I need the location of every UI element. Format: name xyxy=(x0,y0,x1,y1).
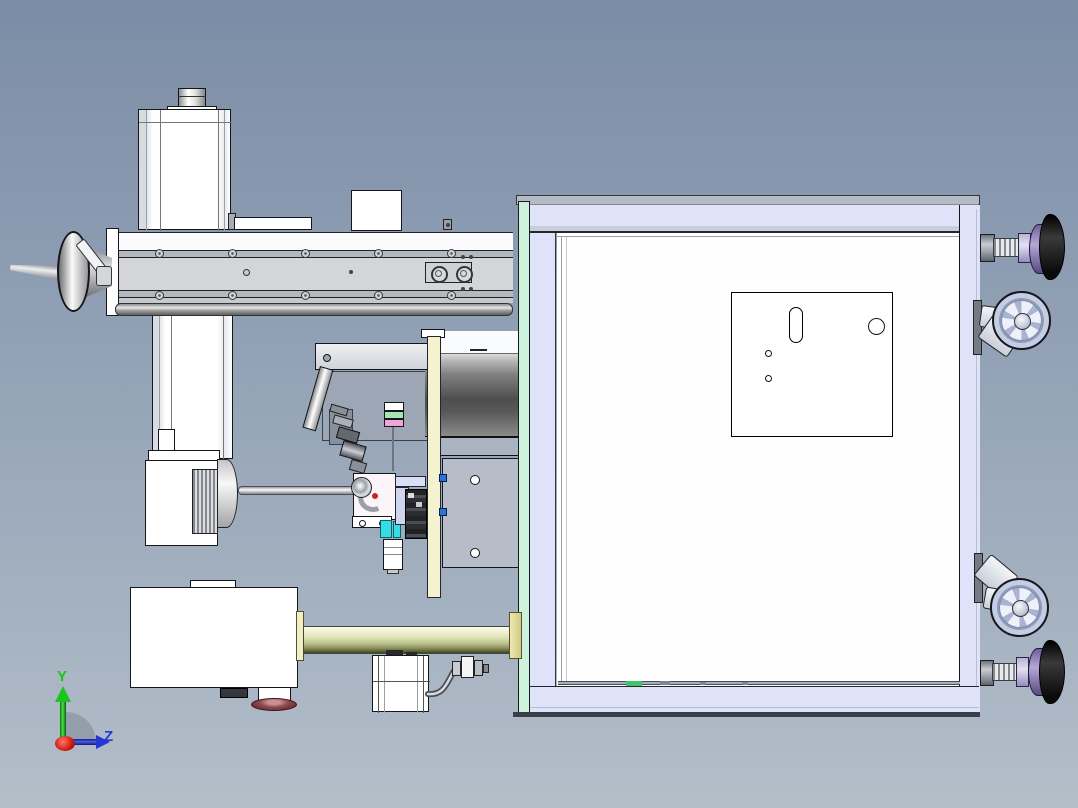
box-foot-red-pad xyxy=(251,698,297,711)
panel-pin-hole xyxy=(765,350,772,357)
tower-line xyxy=(218,110,219,231)
lower-white-cylinder[interactable] xyxy=(383,539,403,570)
small-screw-block xyxy=(443,219,452,230)
x-axis-origin-blob[interactable] xyxy=(55,736,75,751)
valve-chip xyxy=(416,502,422,507)
blue-clip xyxy=(439,474,447,482)
cad-viewport[interactable]: Y Z xyxy=(0,0,1078,808)
tube-end-plate xyxy=(509,612,522,659)
shelf-bracket[interactable] xyxy=(315,343,429,370)
motor-flange xyxy=(217,459,238,528)
stack-white xyxy=(384,402,404,411)
carriage-ring-screw xyxy=(431,266,448,283)
rail-top-band xyxy=(119,232,513,250)
door-line xyxy=(566,236,567,683)
column-line xyxy=(976,209,977,709)
cylinder-cap xyxy=(387,569,399,574)
column-line xyxy=(223,313,224,460)
valve-chip xyxy=(408,493,414,498)
motor-top-piece xyxy=(158,429,175,452)
door-line xyxy=(561,236,562,683)
tower-line xyxy=(224,110,225,231)
cyl-tip xyxy=(349,459,367,474)
box-foot-dark xyxy=(220,688,248,698)
box-body xyxy=(130,587,298,688)
wheel-hub xyxy=(1014,313,1031,330)
cabinet-bottom-detail xyxy=(558,681,960,685)
cap-cylinder xyxy=(178,88,206,108)
inner-access-panel[interactable] xyxy=(731,292,893,437)
tower-line xyxy=(146,110,147,231)
cabinet-right-column xyxy=(959,205,980,714)
adjuster-knob xyxy=(351,477,372,498)
band-tick xyxy=(470,349,487,351)
actuator-tower-body[interactable] xyxy=(138,109,231,230)
support-block[interactable] xyxy=(351,190,402,231)
gray-chip xyxy=(660,681,670,685)
caster-wheel xyxy=(992,291,1051,350)
y-axis-shaft[interactable] xyxy=(60,700,66,740)
stepper-line xyxy=(384,656,385,713)
bar-line xyxy=(530,707,979,708)
l-bracket-top xyxy=(395,476,426,487)
foot-threaded-rod xyxy=(992,663,1018,681)
cable-connector-c xyxy=(474,660,483,676)
foot-threaded-rod xyxy=(993,238,1020,257)
cabinet-top-subband xyxy=(530,226,979,233)
cyl-line xyxy=(384,547,402,548)
panel-round-hole xyxy=(868,318,885,335)
motor-shaft[interactable] xyxy=(238,486,360,495)
stack-green xyxy=(384,411,404,419)
carriage-ring-screw xyxy=(456,266,473,283)
panel-hole xyxy=(470,475,480,485)
wheel-hub xyxy=(1012,600,1029,617)
valve-block[interactable] xyxy=(405,489,427,539)
y-axis-label: Y xyxy=(57,668,67,685)
hub-knob xyxy=(96,266,112,286)
stepper-line xyxy=(378,656,379,713)
rail-cylinder xyxy=(115,303,513,316)
cable-connector-tip xyxy=(483,664,489,673)
tower-line xyxy=(160,110,161,231)
cable-connector-a xyxy=(452,661,461,676)
guide-column-yellow[interactable] xyxy=(427,336,441,598)
panel-hole xyxy=(470,548,480,558)
foot-black-pad xyxy=(1039,214,1065,280)
y-axis-arrowhead[interactable] xyxy=(55,686,71,702)
cabinet-left-column xyxy=(530,233,556,688)
cabinet-shadow-base xyxy=(513,712,980,717)
cable xyxy=(418,650,498,710)
stack-rod xyxy=(392,427,394,471)
cabinet-bottom-bar xyxy=(530,686,979,713)
caster-wheel xyxy=(990,578,1049,637)
tower-line xyxy=(139,122,232,123)
bracket-hole xyxy=(359,520,366,527)
cap-line xyxy=(178,96,206,97)
foot-black-pad xyxy=(1039,640,1065,704)
panel-slot xyxy=(789,307,803,343)
cable-connector-b xyxy=(461,656,474,678)
support-bar[interactable] xyxy=(234,217,312,230)
door-line xyxy=(557,236,959,237)
motor-fins xyxy=(192,469,218,534)
z-axis-label: Z xyxy=(104,728,113,745)
cyan-slider-block[interactable] xyxy=(380,520,392,538)
stack-pink xyxy=(384,419,404,427)
panel-pin-hole xyxy=(765,375,772,382)
shelf-hole xyxy=(323,354,331,362)
gray-chip xyxy=(742,682,748,685)
cylinder-lower-block xyxy=(437,437,521,456)
blue-clip xyxy=(439,508,447,516)
side-gray-panel[interactable] xyxy=(442,458,522,568)
cyl-line xyxy=(384,554,402,555)
adjuster-red-dot xyxy=(372,493,378,499)
gray-chip xyxy=(700,682,706,685)
